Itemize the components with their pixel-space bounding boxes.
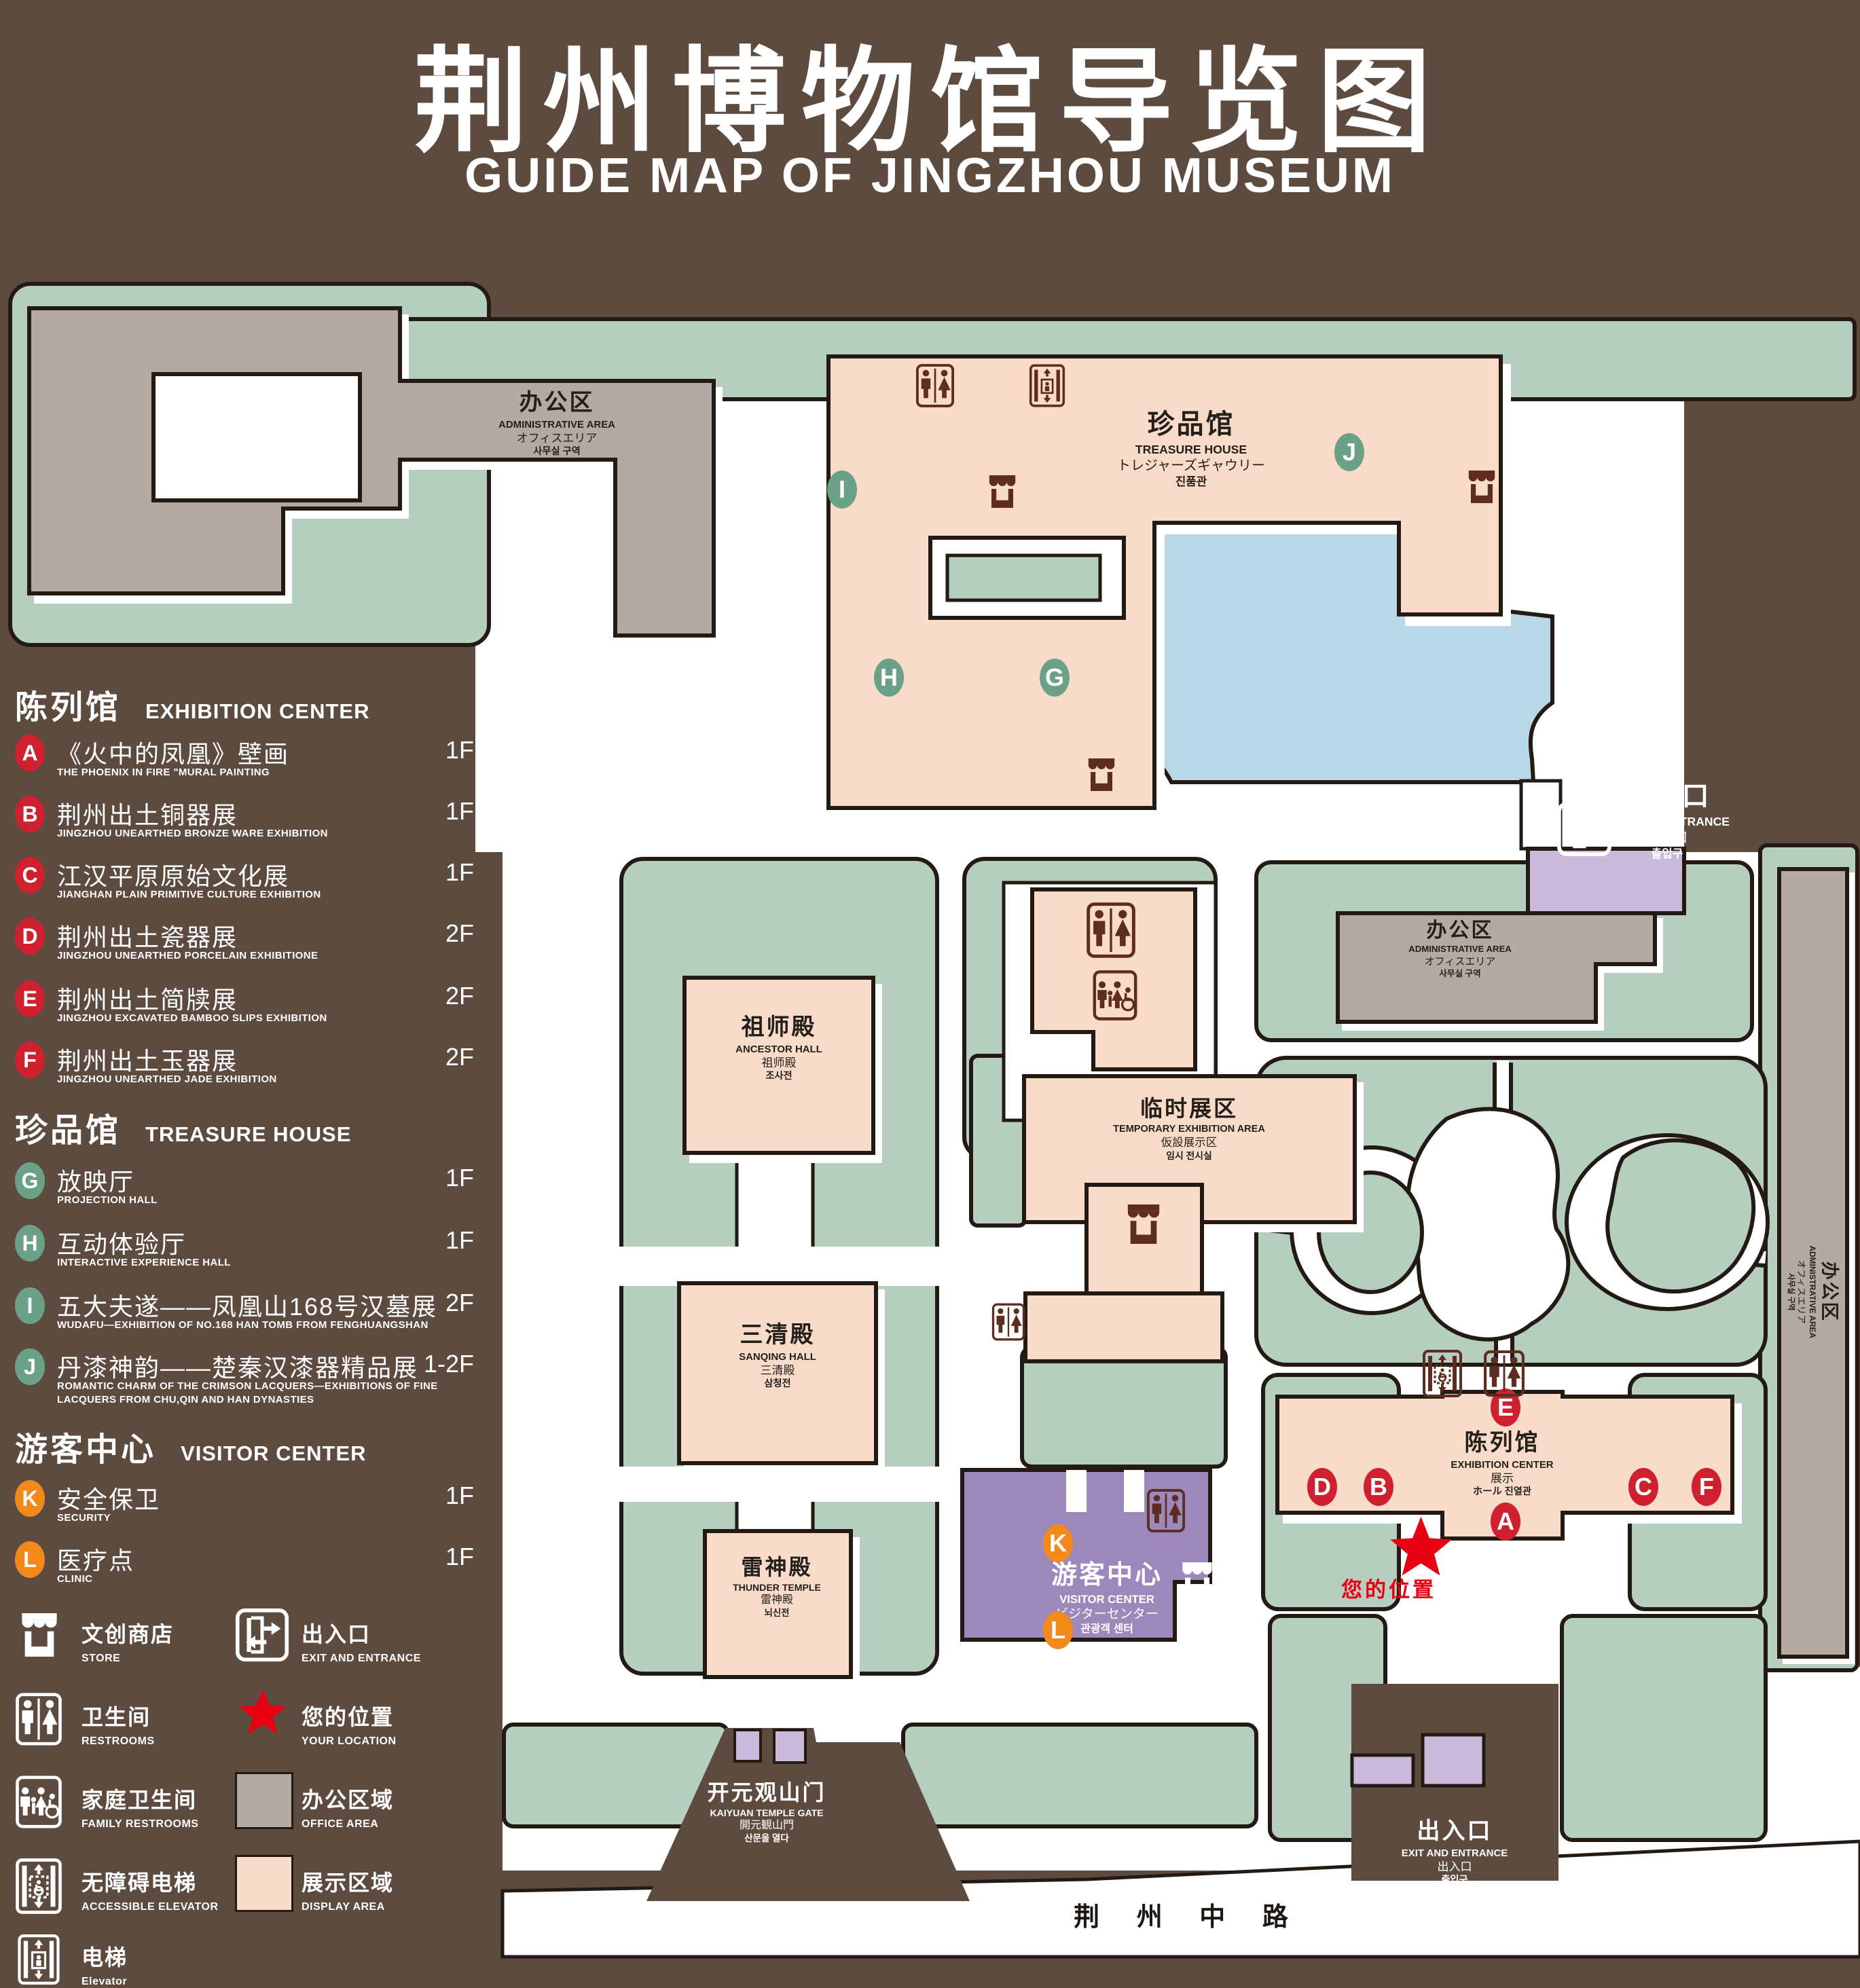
map-marker-C: C [1628, 1468, 1658, 1506]
exit-icon [235, 1608, 289, 1662]
legend-section-treasure-house: 珍品馆TREASURE HOUSE [15, 1103, 351, 1151]
map-marker-D: D [1307, 1468, 1337, 1506]
map-marker-J: J [1334, 433, 1364, 471]
path-corridor-1 [618, 1247, 941, 1286]
legend-item-C: C 江汉平原原始文化展1F JIANGHAN PLAIN PRIMITIVE C… [15, 857, 474, 911]
background-block [1684, 353, 1860, 852]
elevator-icon [16, 1934, 61, 1985]
accessible-elevator-icon [15, 1858, 62, 1915]
label-sanqing-hall: 三清殿SANQING HALL 三清殿삼청전 [642, 1321, 913, 1391]
restrooms-icon [1085, 902, 1137, 959]
legend-symbol-store: 文创商店STORE [81, 1617, 174, 1665]
label-admin-top: 办公区ADMINISTRATIVE AREA オフィスエリア사무실 구역 [421, 388, 693, 458]
legend-symbol-your-location: 您的位置YOUR LOCATION [302, 1700, 397, 1748]
label-temporary-area: 临时展区TEMPORARY EXHIBITION AREA 仮設展示区임시 전시… [1053, 1094, 1325, 1162]
map-marker-L: L [1043, 1611, 1073, 1649]
restrooms-icon [915, 363, 955, 408]
treasure-courtyard-lawn [947, 555, 1100, 600]
garden-island-right [1607, 1141, 1753, 1292]
label-road: 荆 州 中 路 [985, 1896, 1392, 1933]
lawn-gate-right [903, 1725, 1256, 1826]
label-admin-right: 办公区ADMINISTRATIVE AREA オフィスエリア사무실 구역 [1324, 918, 1596, 980]
office-area-swatch [235, 1772, 293, 1829]
restrooms-icon [1483, 1348, 1525, 1399]
legend-symbol-display-area: 展示区域DISPLAY AREA [302, 1866, 394, 1913]
legend-item-E: E 荆州出土简牍展2F JINGZHOU EXCAVATED BAMBOO SL… [15, 980, 474, 1035]
restrooms-icon [15, 1692, 62, 1746]
legend-symbol-restrooms: 卫生间RESTROOMS [81, 1700, 155, 1748]
map-marker-I: I [827, 471, 857, 509]
label-exhibition-center: 陈列馆EXHIBITION CENTER 展示ホール 진열관 [1366, 1429, 1638, 1498]
map-marker-B: B [1364, 1468, 1393, 1506]
guide-map-page: 荆州博物馆导览图 GUIDE MAP OF JINGZHOU MUSEUM 办公… [0, 0, 1860, 1988]
label-ancestor-hall: 祖师殿ANCESTOR HALL 祖师殿조사전 [643, 1013, 915, 1083]
lawn-exit-right [1562, 1616, 1766, 1840]
map-marker-H: H [874, 659, 904, 697]
label-thunder-temple: 雷神殿THUNDER TEMPLE 雷神殿뇌신전 [641, 1553, 913, 1619]
gate-pillar [774, 1730, 805, 1763]
your-location-star-icon [238, 1688, 288, 1735]
visitor-center-slot [1066, 1470, 1087, 1512]
legend-item-A: A 《火中的凤凰》壁画1F THE PHOENIX IN FIRE "MURAL… [15, 735, 474, 789]
legend-symbol-accessible-elevator: 无障碍电梯ACCESSIBLE ELEVATOR [81, 1866, 219, 1913]
exit-icon [1556, 801, 1612, 857]
admin-courtyard [153, 374, 360, 500]
legend-item-F: F 荆州出土玉器展2F JINGZHOU UNEARTHED JADE EXHI… [15, 1042, 474, 1096]
page-subtitle: GUIDE MAP OF JINGZHOU MUSEUM [0, 148, 1860, 204]
legend-symbol-exit: 出入口EXIT AND ENTRANCE [302, 1617, 421, 1665]
building-lower-block [1025, 1293, 1222, 1361]
store-icon [1124, 1200, 1163, 1248]
label-admin-strip: 办公区ADMINISTRATIVE AREA オフィスエリア사무실 구역 [1785, 1149, 1841, 1435]
store-icon [986, 472, 1019, 511]
display-area-swatch [235, 1855, 293, 1912]
legend-item-G: G 放映厅1F PROJECTION HALL [15, 1162, 474, 1217]
map-marker-G: G [1040, 659, 1070, 697]
your-location-star-icon [1389, 1515, 1453, 1577]
legend-section-exhibition-center: 陈列馆EXHIBITION CENTER [15, 680, 369, 728]
legend-item-J: J 丹漆神韵——楚秦汉漆器精品展1-2F ROMANTIC CHARM OF T… [15, 1348, 474, 1403]
legend-symbol-family-restrooms: 家庭卫生间FAMILY RESTROOMS [81, 1783, 198, 1830]
legend-section-visitor-center: 游客中心VISITOR CENTER [15, 1422, 367, 1470]
lawn-small-2 [1022, 1348, 1226, 1467]
store-icon [18, 1610, 61, 1659]
exit-bottom-building-1 [1352, 1755, 1413, 1786]
exit-bottom-building-2 [1423, 1735, 1484, 1786]
path-corridor-2 [618, 1467, 941, 1502]
map-marker-F: F [1692, 1468, 1721, 1506]
accessible-elevator-icon [1422, 1348, 1463, 1399]
legend-item-H: H 互动体验厅1F INTERACTIVE EXPERIENCE HALL [15, 1225, 474, 1279]
legend-item-L: L 医疗点1F CLINIC [15, 1541, 474, 1596]
family-restrooms-icon [1087, 970, 1144, 1021]
elevator-icon [1029, 363, 1065, 408]
map-marker-K: K [1043, 1524, 1073, 1562]
map-marker-A: A [1491, 1503, 1520, 1541]
garden-pond [1408, 1109, 1568, 1339]
legend-item-B: B 荆州出土铜器展1F JINGZHOU UNEARTHED BRONZE WA… [15, 796, 474, 850]
label-treasure-house: 珍品馆TREASURE HOUSE トレジャーズギャウリー진품관 [1055, 407, 1327, 490]
visitor-center-slot [1124, 1470, 1144, 1512]
store-icon [1179, 1559, 1216, 1602]
store-icon [1085, 755, 1118, 794]
family-restrooms-icon [15, 1775, 62, 1829]
badge-A: A [15, 735, 45, 771]
legend-item-I: I 五大夫遂——凤凰山168号汉墓展2F WUDAFU—EXHIBITION O… [15, 1287, 474, 1342]
restrooms-icon [1146, 1488, 1186, 1533]
legend-item-K: K 安全保卫1F SECURITY [15, 1480, 474, 1534]
legend-symbol-office-area: 办公区域OFFICE AREA [302, 1783, 394, 1830]
legend-item-D: D 荆州出土瓷器展2F JINGZHOU UNEARTHED PORCELAIN… [15, 918, 474, 972]
store-icon [1465, 467, 1498, 507]
restrooms-icon [991, 1302, 1025, 1342]
label-exit-bottom: 出入口EXIT AND ENTRANCE 出入口출입구 [1319, 1817, 1590, 1887]
label-kaiyuan-gate: 开元观山门KAIYUAN TEMPLE GATE 開元観山門산문을 열다 [631, 1779, 902, 1845]
gate-pillar [735, 1730, 761, 1761]
legend-symbol-elevator: 电梯Elevator [81, 1940, 128, 1988]
